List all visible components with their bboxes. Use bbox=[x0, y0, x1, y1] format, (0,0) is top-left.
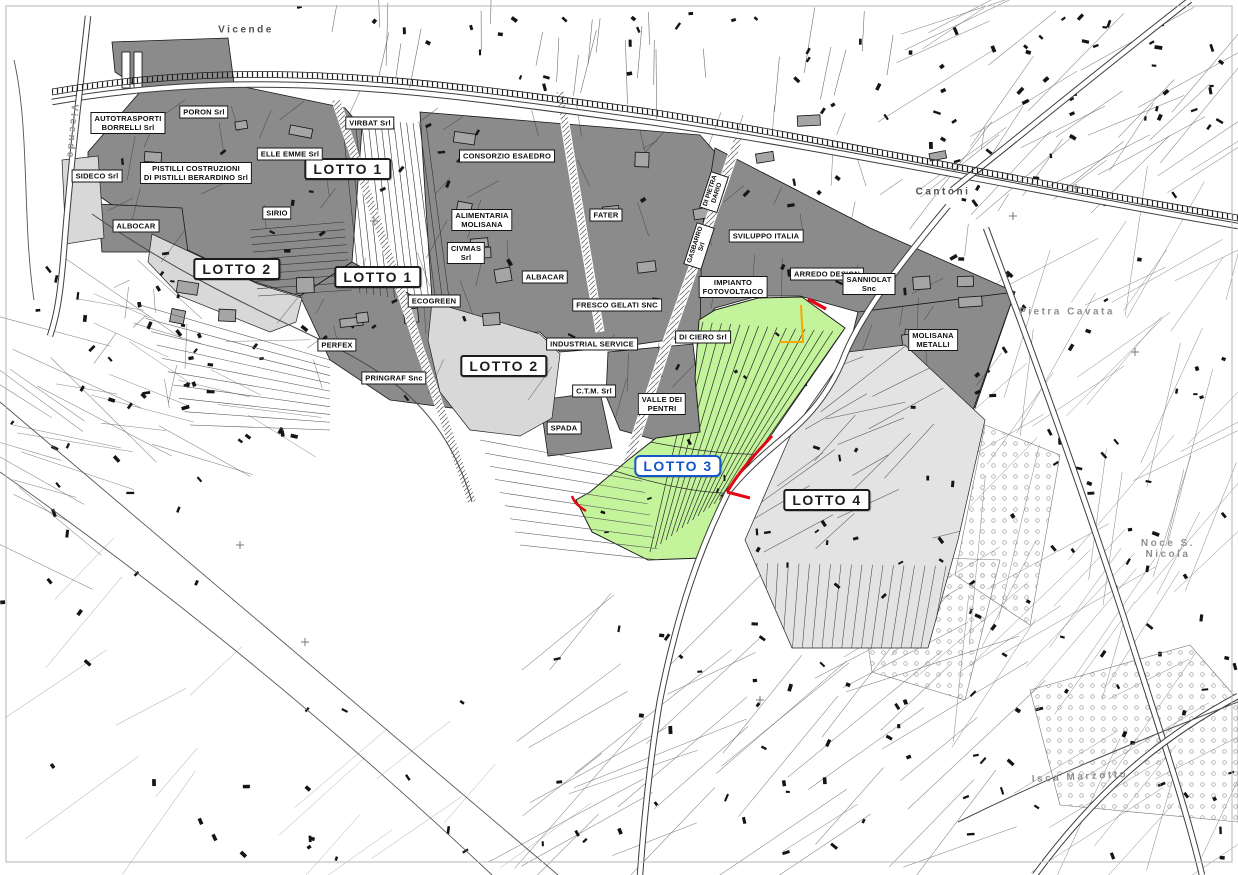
cadastral-map: LOTTO 1LOTTO 1LOTTO 2LOTTO 2LOTTO 3LOTTO… bbox=[0, 0, 1238, 875]
parcel-dark-west bbox=[88, 84, 362, 296]
red-boundary-segment bbox=[727, 492, 750, 498]
map-canvas bbox=[0, 0, 1238, 875]
